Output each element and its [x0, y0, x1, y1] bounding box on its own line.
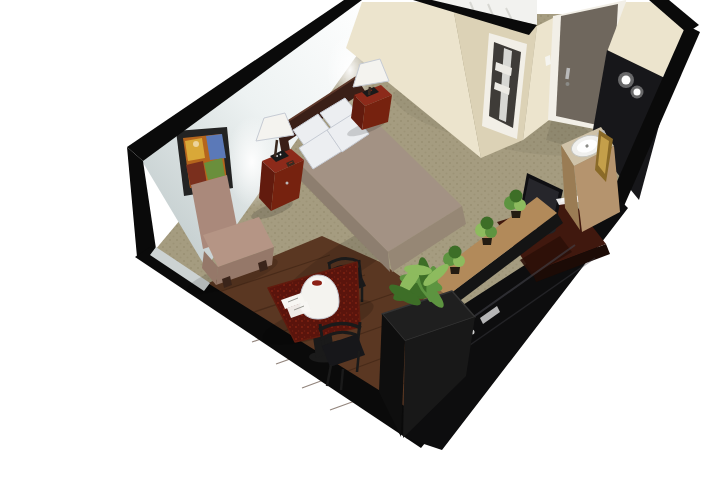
plant-foliage: [481, 217, 494, 230]
room-render: [0, 0, 720, 480]
plant-pot: [482, 238, 492, 245]
plant-pot: [450, 267, 460, 274]
light-switch-plate: [545, 55, 551, 66]
lamp-stem: [369, 87, 370, 95]
phone-key: [280, 154, 282, 156]
art-highlight: [193, 141, 199, 147]
vanity-light: [634, 89, 641, 96]
drawer-knob: [286, 182, 289, 185]
lamp-opening: [312, 280, 322, 286]
door-lock: [566, 82, 570, 86]
plant-foliage: [510, 190, 523, 203]
plant-pot: [511, 211, 521, 218]
vanity-light: [622, 76, 631, 85]
plant-foliage: [449, 246, 462, 259]
